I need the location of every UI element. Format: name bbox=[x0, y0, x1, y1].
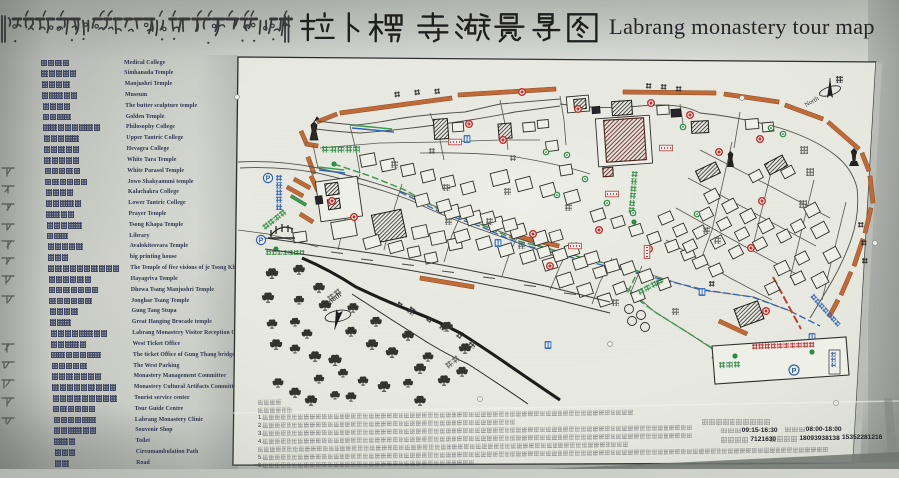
svg-text:P: P bbox=[791, 366, 796, 375]
